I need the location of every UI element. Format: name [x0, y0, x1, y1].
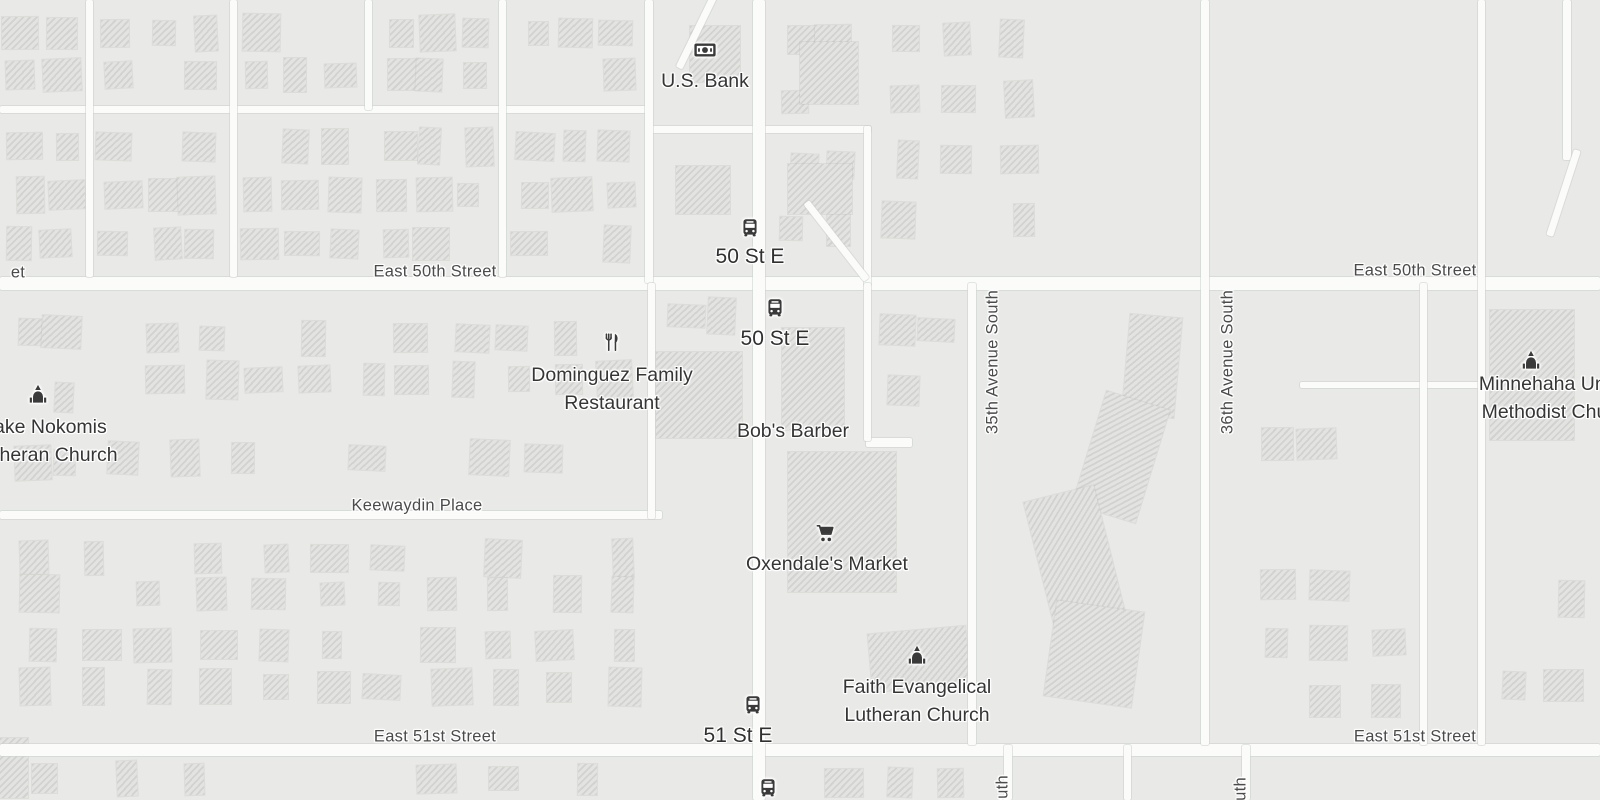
building — [524, 444, 561, 472]
building — [421, 628, 455, 663]
street-label: et — [11, 264, 25, 283]
building — [195, 543, 221, 573]
building — [1261, 570, 1295, 600]
building — [612, 539, 633, 577]
building — [469, 439, 509, 476]
building — [284, 58, 306, 92]
bus-icon[interactable] — [740, 218, 761, 239]
building — [887, 768, 912, 798]
road — [1546, 149, 1580, 237]
building — [486, 632, 511, 659]
building — [264, 544, 288, 572]
building-large — [800, 42, 858, 104]
poi-faith-evangelical-lutheran-church[interactable]: Faith EvangelicalLutheran Church — [843, 673, 992, 729]
building — [242, 14, 280, 52]
building — [47, 18, 77, 49]
road — [864, 283, 871, 441]
poi-oxendales-market[interactable]: Oxendale's Market — [746, 550, 908, 578]
building — [245, 62, 266, 89]
street-label: 35th Avenue South — [994, 775, 1013, 800]
poi-label-line: Faith Evangelical — [843, 673, 992, 701]
building — [466, 127, 494, 166]
building — [147, 670, 170, 705]
building — [578, 763, 597, 794]
building — [515, 132, 554, 161]
building — [20, 575, 60, 613]
road — [1124, 745, 1131, 800]
building — [458, 184, 479, 206]
building — [897, 141, 919, 178]
building — [1310, 570, 1350, 600]
building — [879, 314, 915, 345]
building — [559, 19, 593, 48]
building — [554, 576, 581, 612]
building — [882, 201, 917, 238]
road — [365, 0, 372, 110]
building — [98, 232, 127, 255]
building — [363, 674, 401, 700]
building — [551, 178, 592, 213]
building — [535, 630, 573, 661]
building — [1310, 685, 1340, 716]
building — [379, 583, 399, 606]
poi-label-line: Dominguez Family — [531, 361, 692, 389]
building — [395, 366, 428, 394]
building-large — [1044, 600, 1145, 707]
building — [183, 132, 216, 161]
building — [413, 228, 449, 260]
building — [83, 630, 121, 660]
poi-label-line: Oxendale's Market — [746, 550, 908, 578]
building — [547, 673, 571, 702]
building — [6, 133, 41, 159]
poi-label-line: Methodist Church — [1479, 398, 1600, 426]
church-icon — [25, 382, 51, 408]
building-large — [676, 166, 730, 214]
building — [555, 322, 576, 355]
road — [0, 511, 662, 519]
building — [133, 628, 171, 662]
building — [431, 668, 472, 705]
road — [230, 0, 237, 277]
building — [19, 541, 48, 575]
cart-icon — [814, 521, 838, 545]
building — [244, 178, 272, 212]
building — [185, 230, 213, 258]
building — [599, 21, 632, 45]
building — [322, 632, 341, 658]
building — [607, 182, 635, 207]
building — [463, 18, 489, 47]
poi-label-line: Lake Nokomis — [0, 413, 118, 441]
building — [428, 578, 456, 611]
building — [390, 20, 413, 47]
poi-bobs-barber[interactable]: Bob's Barber — [737, 417, 849, 445]
street-label: 35th Avenue South — [984, 290, 1003, 434]
building — [57, 134, 78, 160]
poi-label-line: Lutheran Church — [843, 701, 992, 729]
building — [6, 60, 35, 89]
building — [611, 576, 633, 611]
building — [1373, 630, 1406, 657]
building — [1013, 204, 1033, 236]
building — [19, 668, 50, 706]
building — [264, 675, 288, 700]
building — [609, 668, 642, 707]
building — [370, 545, 403, 570]
building — [54, 382, 74, 412]
street-label: East 50th Street — [1353, 262, 1476, 281]
building — [240, 229, 277, 259]
building — [185, 62, 216, 89]
restaurant-icon — [601, 332, 624, 355]
road — [1300, 382, 1482, 388]
poi-dominguez-family-restaurant[interactable]: Dominguez FamilyRestaurant — [531, 361, 692, 417]
bank-icon — [692, 39, 718, 61]
building — [320, 583, 343, 606]
building — [564, 131, 586, 162]
building — [83, 668, 104, 705]
building — [260, 629, 289, 661]
building — [330, 229, 358, 258]
building — [201, 631, 237, 658]
building — [603, 225, 630, 262]
building — [494, 670, 519, 705]
building — [1262, 428, 1293, 460]
building — [184, 763, 204, 794]
road — [86, 0, 93, 277]
building — [49, 180, 86, 209]
street-label: East 51st Street — [1354, 728, 1476, 747]
building — [200, 327, 224, 350]
building — [196, 578, 226, 611]
poi-label-line: Restaurant — [531, 389, 692, 417]
transit-stop-label[interactable]: 51 St E — [704, 724, 773, 748]
building — [318, 672, 350, 703]
building — [200, 669, 231, 704]
bus-icon[interactable] — [758, 778, 779, 799]
building — [452, 362, 475, 397]
road — [0, 106, 648, 113]
building — [942, 86, 976, 112]
building — [43, 58, 83, 92]
building — [1544, 670, 1583, 701]
poi-minnehaha-united-methodist-church[interactable]: Minnehaha UnitedMethodist Church — [1479, 370, 1600, 426]
building — [147, 324, 179, 353]
poi-lake-nokomis-lutheran-church[interactable]: Lake NokomisLutheran Church — [0, 413, 118, 469]
road — [1563, 0, 1571, 160]
building — [529, 22, 548, 45]
building — [825, 769, 863, 797]
building — [1297, 428, 1337, 459]
building — [282, 130, 309, 164]
building — [40, 229, 72, 257]
building — [489, 767, 518, 790]
building — [1372, 685, 1400, 717]
building — [349, 445, 386, 470]
building — [311, 544, 348, 571]
building — [2, 17, 38, 50]
building — [207, 360, 239, 399]
building — [597, 131, 629, 162]
building — [244, 367, 282, 392]
building — [419, 15, 455, 52]
building — [999, 19, 1024, 57]
street-label: Keewaydin Place — [351, 497, 482, 516]
building — [231, 443, 253, 473]
building — [251, 579, 285, 610]
building — [329, 177, 362, 212]
building — [943, 22, 970, 55]
street-label: East 51st Street — [374, 728, 496, 747]
building — [32, 764, 57, 793]
building — [511, 232, 547, 255]
building — [101, 20, 129, 47]
building — [282, 181, 319, 209]
building — [495, 326, 528, 352]
building — [1001, 145, 1038, 173]
building — [614, 630, 633, 661]
road — [864, 126, 871, 286]
building — [918, 318, 955, 342]
building — [416, 178, 452, 212]
building — [105, 181, 143, 208]
street-label: East 50th Street — [373, 263, 496, 282]
building — [509, 367, 529, 392]
building — [418, 128, 440, 165]
building — [1265, 629, 1287, 657]
building — [464, 62, 486, 87]
transit-stop-label[interactable]: 50 St E — [716, 245, 785, 269]
building — [7, 227, 32, 260]
building — [415, 58, 443, 91]
building — [780, 217, 802, 240]
church-icon — [904, 643, 930, 669]
building — [940, 146, 971, 174]
building — [178, 176, 216, 214]
building — [116, 761, 137, 797]
building — [302, 321, 325, 356]
road — [1201, 0, 1209, 745]
building — [384, 132, 416, 160]
building — [522, 183, 548, 208]
building — [146, 366, 185, 394]
building — [938, 769, 963, 798]
building — [488, 578, 507, 610]
building — [298, 366, 330, 393]
building — [104, 61, 132, 89]
building — [137, 582, 160, 606]
road — [1420, 283, 1427, 745]
building — [1503, 671, 1527, 699]
road — [499, 0, 506, 277]
building — [322, 129, 348, 164]
bus-icon[interactable] — [743, 695, 764, 716]
building — [84, 542, 103, 575]
poi-label-line: U.S. Bank — [661, 67, 749, 95]
building — [194, 15, 218, 51]
building — [30, 629, 56, 662]
poi-us-bank[interactable]: U.S. Bank — [661, 67, 749, 95]
road — [866, 438, 912, 447]
transit-stop-label[interactable]: 50 St E — [741, 327, 810, 351]
building — [893, 26, 919, 51]
building — [1004, 80, 1034, 117]
building — [363, 364, 384, 396]
poi-label-line: Minnehaha United — [1479, 370, 1600, 398]
building — [154, 228, 182, 260]
building — [603, 59, 635, 91]
building — [667, 304, 705, 328]
building — [377, 179, 406, 210]
building — [153, 21, 176, 45]
road — [645, 0, 653, 283]
building — [484, 539, 522, 577]
building — [455, 324, 489, 353]
road — [753, 0, 765, 800]
building — [416, 764, 456, 793]
building — [170, 440, 200, 477]
building — [707, 297, 736, 334]
building — [285, 232, 319, 255]
building — [384, 230, 409, 257]
building — [16, 177, 43, 213]
building — [41, 316, 82, 350]
poi-label-line: Bob's Barber — [737, 417, 849, 445]
building — [324, 63, 355, 87]
bus-icon[interactable] — [765, 298, 786, 319]
building-large — [788, 164, 852, 214]
street-label: 36th Avenue South — [1219, 290, 1238, 434]
map-canvas[interactable]: etEast 50th StreetEast 50th StreetKeeway… — [0, 0, 1600, 800]
building — [890, 85, 919, 112]
building — [1310, 626, 1347, 660]
building — [887, 375, 919, 405]
building — [95, 132, 131, 160]
poi-label-line: Lutheran Church — [0, 441, 118, 469]
street-label: 36th Avenue South — [1232, 777, 1251, 800]
building — [1559, 581, 1584, 618]
building — [394, 324, 427, 352]
